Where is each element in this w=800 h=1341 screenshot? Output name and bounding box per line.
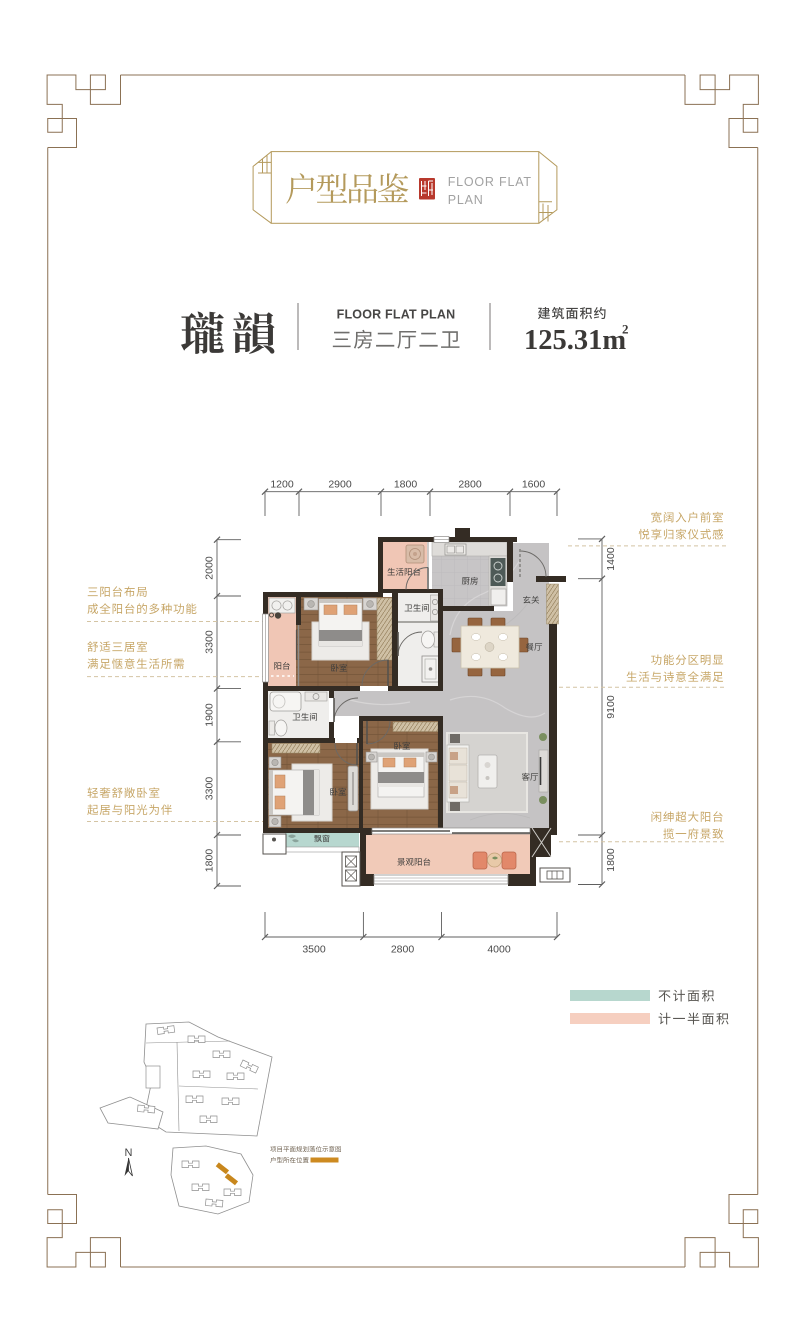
svg-text:1800: 1800 — [394, 479, 418, 491]
svg-text:1800: 1800 — [204, 849, 216, 873]
svg-text:1600: 1600 — [522, 479, 546, 491]
svg-text:PLAN: PLAN — [448, 193, 484, 207]
svg-text:2900: 2900 — [328, 479, 352, 491]
svg-text:2000: 2000 — [204, 556, 216, 580]
svg-text:3500: 3500 — [302, 944, 326, 956]
svg-text:FLOOR FLAT PLAN: FLOOR FLAT PLAN — [337, 308, 456, 322]
svg-text:N: N — [125, 1147, 133, 1159]
svg-text:125.31m: 125.31m — [524, 325, 626, 356]
svg-text:1800: 1800 — [605, 848, 617, 872]
svg-text:2800: 2800 — [458, 479, 482, 491]
svg-text:2: 2 — [622, 322, 629, 337]
svg-text:1200: 1200 — [270, 479, 294, 491]
svg-text:1900: 1900 — [204, 703, 216, 727]
svg-text:1400: 1400 — [605, 547, 617, 571]
svg-text:FLOOR FLAT: FLOOR FLAT — [448, 175, 532, 189]
svg-text:3300: 3300 — [204, 777, 216, 801]
svg-text:2800: 2800 — [391, 944, 415, 956]
svg-text:4000: 4000 — [487, 944, 511, 956]
svg-text:9100: 9100 — [605, 695, 617, 719]
svg-text:3300: 3300 — [204, 630, 216, 654]
